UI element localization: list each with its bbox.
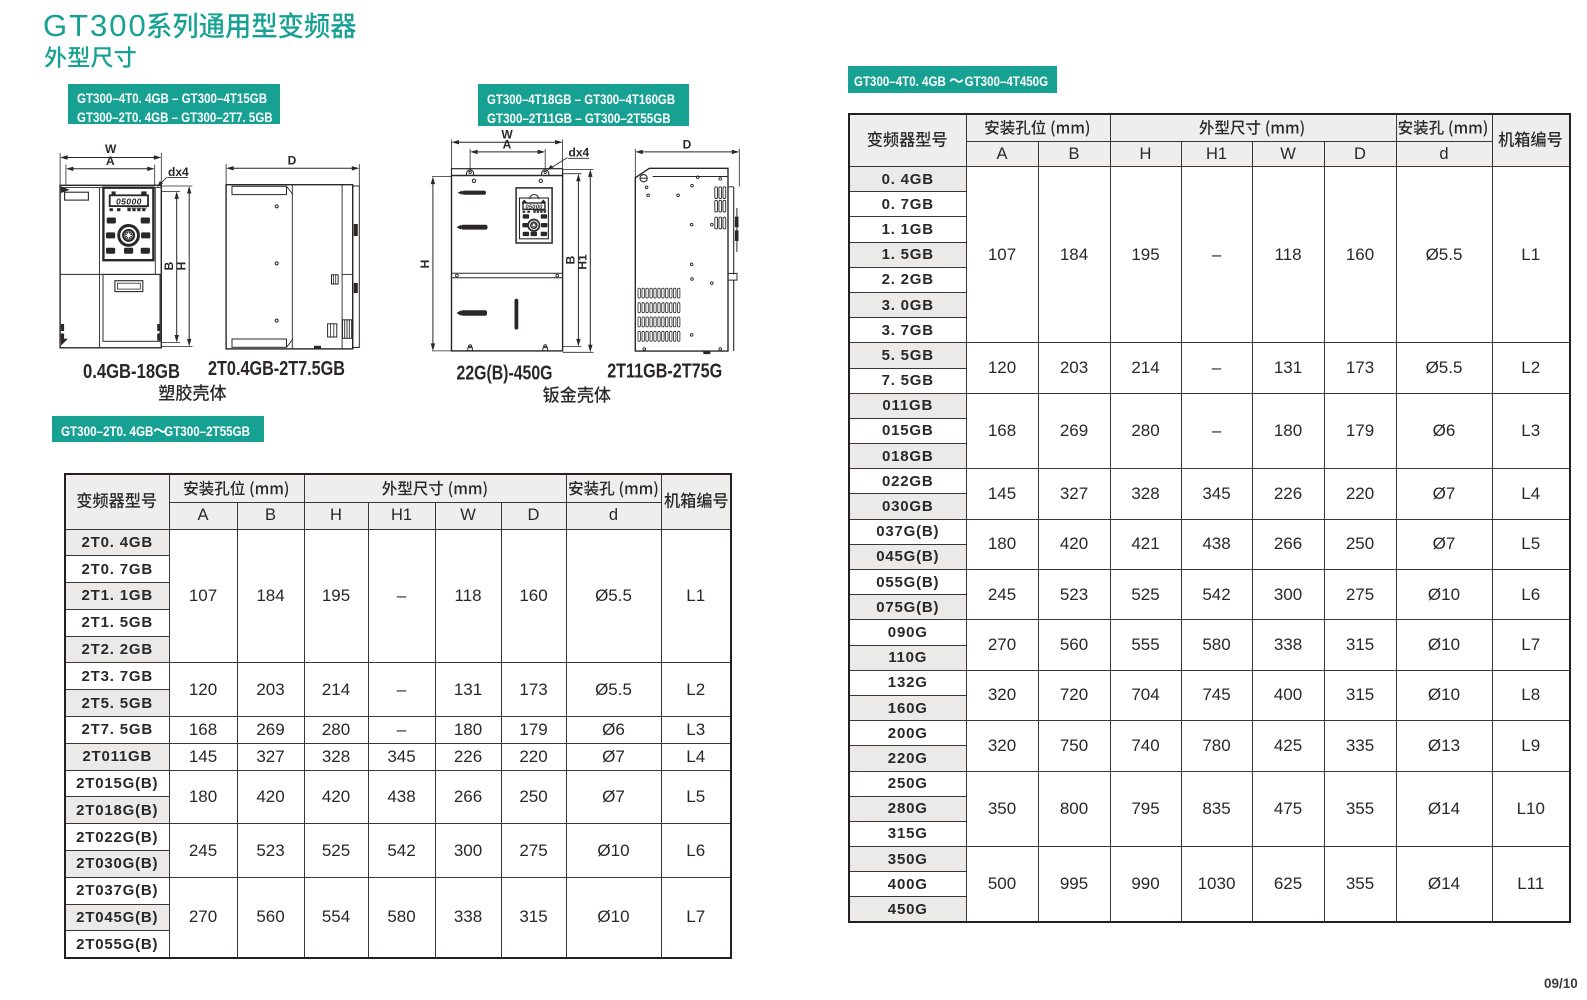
svg-text:22G(B)-450G: 22G(B)-450G	[457, 363, 553, 385]
svg-text:dx4: dx4	[168, 165, 189, 179]
svg-text:A: A	[106, 154, 115, 168]
svg-text:D: D	[288, 153, 297, 167]
svg-text:2T11GB-2T75G: 2T11GB-2T75G	[607, 361, 722, 383]
svg-text:2T0.4GB-2T7.5GB: 2T0.4GB-2T7.5GB	[208, 358, 345, 380]
svg-text:05000: 05000	[116, 196, 142, 206]
svg-text:H: H	[174, 262, 188, 271]
svg-text:H: H	[418, 260, 432, 269]
svg-text:dx4: dx4	[569, 146, 590, 160]
svg-text:H1: H1	[576, 254, 590, 270]
svg-text:05000: 05000	[525, 204, 543, 210]
svg-text:W: W	[501, 128, 513, 142]
svg-text:D: D	[683, 137, 692, 151]
svg-text:B: B	[162, 261, 176, 270]
svg-text:W: W	[105, 142, 117, 156]
svg-text:0.4GB-18GB: 0.4GB-18GB	[83, 361, 180, 383]
svg-text:B: B	[564, 255, 578, 264]
svg-text:A: A	[503, 138, 512, 152]
